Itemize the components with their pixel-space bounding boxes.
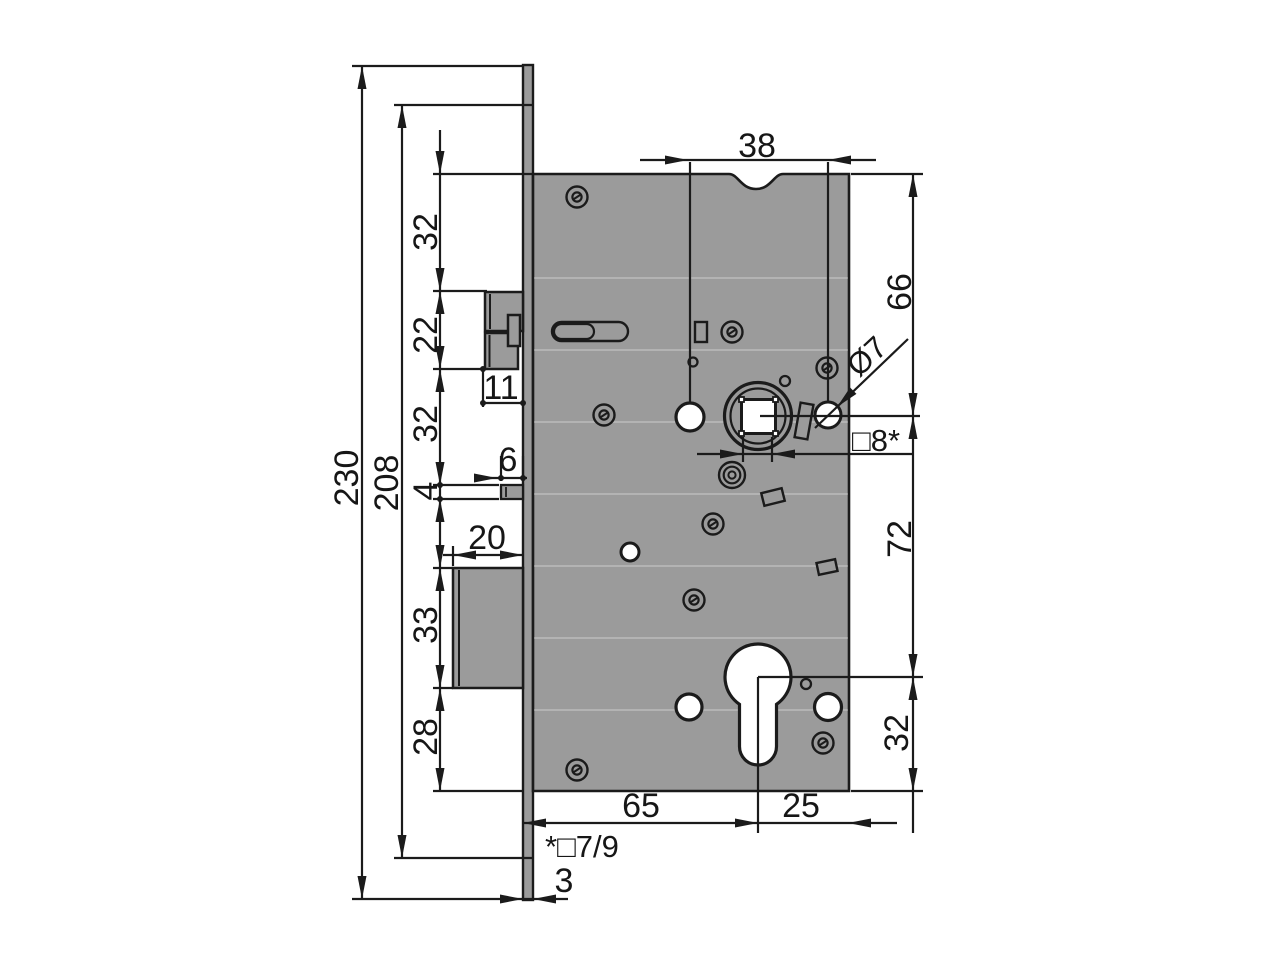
- dim-bolt-to-bottom: 28: [407, 718, 445, 756]
- rect-opening-angled: [816, 559, 837, 575]
- pin-hole: [801, 679, 811, 689]
- washer: [719, 462, 745, 488]
- dim-bolt-height: 33: [407, 606, 445, 644]
- dim-latch-height: 22: [407, 316, 445, 354]
- drawing-canvas: 230 208 32 22 32 4 33 28 11 6 20 38 66 7…: [0, 0, 1280, 960]
- dim-plate-height: 208: [368, 455, 406, 512]
- dim-hub-spacing: 38: [738, 127, 776, 165]
- dim-follower-to-cylinder: 72: [881, 520, 919, 558]
- latch-bolt: [485, 292, 523, 369]
- hub-hole: [676, 403, 704, 431]
- dim-edge-distance: 25: [782, 787, 820, 825]
- dim-plate-thickness: 3: [555, 862, 574, 900]
- faceplate: [523, 65, 533, 900]
- pin-hole: [780, 376, 790, 386]
- slide-slot: [552, 322, 628, 341]
- dim-latch-width: 11: [483, 369, 518, 407]
- lock-parts: [453, 65, 849, 900]
- dim-top-to-latch: 32: [407, 213, 445, 251]
- lock-technical-drawing: 230 208 32 22 32 4 33 28 11 6 20 38 66 7…: [0, 0, 1280, 960]
- note-square-sizes: *□7/9: [545, 829, 619, 864]
- dim-pin-width: 6: [499, 441, 518, 479]
- dim-bolt-width: 20: [468, 519, 506, 557]
- guide-pin: [501, 485, 523, 499]
- dim-backset: 65: [622, 787, 660, 825]
- small-hole: [621, 543, 639, 561]
- dim-total-height: 230: [328, 450, 366, 507]
- deadbolt: [453, 568, 523, 688]
- dim-latch-to-pin: 32: [407, 405, 445, 443]
- dim-top-to-follower: 66: [881, 273, 919, 311]
- rect-opening: [695, 322, 707, 342]
- fixing-hole: [676, 694, 702, 720]
- dim-pin-height: 4: [407, 482, 445, 501]
- dim-follower-square: □8*: [852, 423, 900, 458]
- fixing-hole: [815, 694, 842, 721]
- dim-cylinder-to-bottom: 32: [878, 714, 916, 752]
